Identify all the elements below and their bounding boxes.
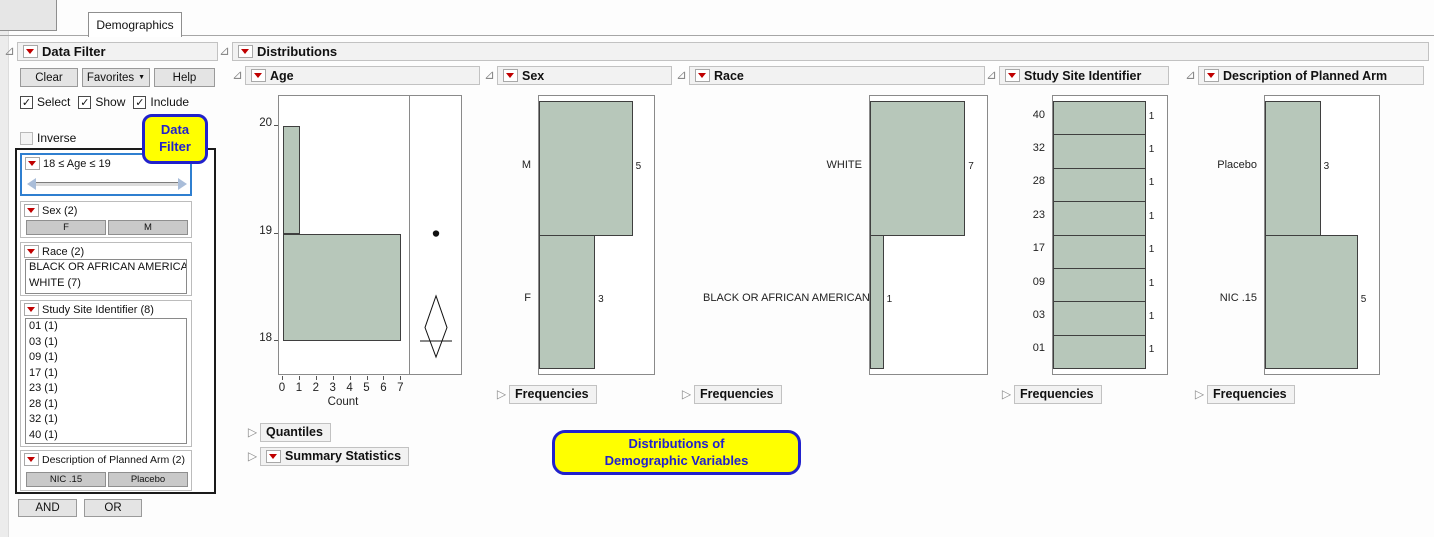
disclosure-open-icon[interactable]: ⊿ <box>1185 66 1196 84</box>
data-filter-callout: Data Filter <box>142 114 208 164</box>
histogram-bar[interactable] <box>1053 268 1146 302</box>
red-triangle-menu-icon[interactable] <box>695 69 710 82</box>
sex-section-header: ⊿ Sex <box>484 66 672 85</box>
x-axis-title: Count <box>278 396 408 408</box>
race-filter-label: Race (2) <box>42 246 84 258</box>
red-triangle-menu-icon[interactable] <box>1005 69 1020 82</box>
help-button[interactable]: Help <box>154 68 215 87</box>
site-filter-box: Study Site Identifier (8) 01 (1)03 (1)09… <box>20 300 192 447</box>
list-item[interactable]: 01 (1) <box>26 319 186 335</box>
list-item[interactable]: BLACK OR AFRICAN AMERICAN (1) <box>26 260 186 276</box>
red-triangle-menu-icon[interactable] <box>1204 69 1219 82</box>
plot-frame <box>869 95 988 375</box>
x-tick-mark <box>316 376 317 380</box>
y-tick-mark <box>274 125 278 126</box>
arm-placebo-button[interactable]: Placebo <box>108 472 188 487</box>
list-item[interactable]: 09 (1) <box>26 350 186 366</box>
arm-frequencies-row: ▷ Frequencies <box>1194 385 1295 404</box>
sex-frequencies-row: ▷ Frequencies <box>496 385 597 404</box>
frequencies-button[interactable]: Frequencies <box>1014 385 1102 404</box>
show-checkbox[interactable] <box>78 96 91 109</box>
category-label: 01 <box>1014 342 1045 354</box>
bar-value-label: 1 <box>1149 111 1155 122</box>
site-bar-chart: 140132128123117109103101 <box>1014 95 1172 375</box>
age-section-header: ⊿ Age <box>232 66 480 85</box>
data-filter-title-bar: Data Filter <box>17 42 218 61</box>
frequencies-button[interactable]: Frequencies <box>694 385 782 404</box>
disclosure-closed-icon[interactable]: ▷ <box>247 447 258 465</box>
x-tick-label: 1 <box>291 382 307 394</box>
filter-mode-checkboxes: Select Show Include <box>20 95 189 109</box>
y-tick-mark <box>274 233 278 234</box>
histogram-bar[interactable] <box>1053 235 1146 269</box>
inverse-row: Inverse <box>20 131 76 145</box>
site-section-header: ⊿ Study Site Identifier <box>986 66 1169 85</box>
clear-button[interactable]: Clear <box>20 68 78 87</box>
category-label: 17 <box>1014 242 1045 254</box>
bar-value-label: 3 <box>1324 161 1330 172</box>
arm-section-header: ⊿ Description of Planned Arm <box>1185 66 1424 85</box>
bar-value-label: 3 <box>598 294 604 305</box>
distributions-header: ⊿ Distributions <box>219 42 1429 61</box>
age-title-bar: Age <box>245 66 480 85</box>
bar-value-label: 5 <box>636 161 642 172</box>
select-label: Select <box>37 95 70 109</box>
inverse-label: Inverse <box>37 131 76 145</box>
summary-statistics-button[interactable]: Summary Statistics <box>260 447 409 466</box>
show-label: Show <box>95 95 125 109</box>
category-label: NIC .15 <box>1206 292 1257 304</box>
sex-f-button[interactable]: F <box>26 220 106 235</box>
category-label: 03 <box>1014 309 1045 321</box>
tab-strip-divider <box>0 35 1434 36</box>
sex-bar-chart: 5M3F <box>500 95 660 375</box>
bar-value-label: 1 <box>1149 344 1155 355</box>
category-label: 09 <box>1014 276 1045 288</box>
sex-m-button[interactable]: M <box>108 220 188 235</box>
y-tick-label: 19 <box>245 225 272 237</box>
left-gutter <box>0 31 9 537</box>
x-tick-label: 2 <box>308 382 324 394</box>
window-corner-decoration <box>0 0 57 31</box>
histogram-bar[interactable] <box>1053 101 1146 135</box>
red-triangle-menu-icon[interactable] <box>25 157 40 170</box>
bar-value-label: 1 <box>1149 144 1155 155</box>
select-checkbox[interactable] <box>20 96 33 109</box>
red-triangle-menu-icon[interactable] <box>24 245 39 258</box>
red-triangle-menu-icon[interactable] <box>24 204 39 217</box>
disclosure-open-icon[interactable]: ⊿ <box>232 66 243 84</box>
list-item[interactable]: 28 (1) <box>26 397 186 413</box>
red-triangle-menu-icon[interactable] <box>23 45 38 58</box>
bar-value-label: 7 <box>968 161 974 172</box>
arm-title-bar: Description of Planned Arm <box>1198 66 1424 85</box>
category-label: 28 <box>1014 175 1045 187</box>
bar-value-label: 1 <box>1149 177 1155 188</box>
arm-filter-box: Description of Planned Arm (2) NIC .15 P… <box>20 450 192 491</box>
histogram-bar[interactable] <box>870 101 965 236</box>
data-filter-header: ⊿ Data Filter <box>4 42 218 61</box>
category-label: M <box>500 159 531 171</box>
disclosure-open-icon[interactable]: ⊿ <box>219 42 230 60</box>
arm-filter-label: Description of Planned Arm (2) <box>42 454 185 466</box>
disclosure-open-icon[interactable]: ⊿ <box>4 42 15 60</box>
red-triangle-menu-icon[interactable] <box>24 303 39 316</box>
race-filter-box: Race (2) BLACK OR AFRICAN AMERICAN (1)WH… <box>20 242 192 296</box>
jmp-report-window: Demographics ⊿ Data Filter Clear Favorit… <box>0 0 1434 537</box>
category-label: BLACK OR AFRICAN AMERICAN <box>703 292 862 304</box>
disclosure-closed-icon[interactable]: ▷ <box>1194 385 1205 403</box>
histogram-bar[interactable] <box>1265 101 1321 236</box>
race-title: Race <box>714 69 744 83</box>
y-tick-mark <box>274 340 278 341</box>
category-label: Placebo <box>1206 159 1257 171</box>
histogram-bar[interactable] <box>283 126 300 233</box>
category-label: 40 <box>1014 109 1045 121</box>
summary-statistics-row: ▷ Summary Statistics <box>247 447 409 466</box>
quantiles-button[interactable]: Quantiles <box>260 423 331 442</box>
x-tick-label: 7 <box>392 382 408 394</box>
category-label: WHITE <box>703 159 862 171</box>
tab-demographics[interactable]: Demographics <box>88 12 182 37</box>
disclosure-closed-icon[interactable]: ▷ <box>681 385 692 403</box>
x-tick-label: 4 <box>342 382 358 394</box>
plot-frame <box>1052 95 1168 375</box>
data-filter-title: Data Filter <box>42 44 106 59</box>
arm-nic-button[interactable]: NIC .15 <box>26 472 106 487</box>
sex-filter-box: Sex (2) F M <box>20 201 192 238</box>
histogram-bar[interactable] <box>1265 235 1358 370</box>
histogram-bar[interactable] <box>1053 134 1146 168</box>
dropdown-caret-icon: ▼ <box>138 74 145 81</box>
sex-title-bar: Sex <box>497 66 672 85</box>
x-tick-mark <box>282 376 283 380</box>
y-tick-label: 18 <box>245 332 272 344</box>
red-triangle-menu-icon[interactable] <box>238 45 253 58</box>
filter-group-box: 18 ≤ Age ≤ 19 Sex (2) F M Race (2) BLACK… <box>15 148 216 494</box>
plot-frame <box>1264 95 1380 375</box>
list-item[interactable]: 32 (1) <box>26 412 186 428</box>
x-tick-mark <box>350 376 351 380</box>
x-tick-mark <box>400 376 401 380</box>
site-filter-label: Study Site Identifier (8) <box>42 304 154 316</box>
x-tick-mark <box>299 376 300 380</box>
x-tick-mark <box>367 376 368 380</box>
histogram-bar[interactable] <box>283 234 401 341</box>
bar-value-label: 1 <box>887 294 893 305</box>
bar-value-label: 1 <box>1149 244 1155 255</box>
x-tick-mark <box>333 376 334 380</box>
list-item[interactable]: WHITE (7) <box>26 276 186 292</box>
sex-filter-label: Sex (2) <box>42 205 77 217</box>
disclosure-open-icon[interactable]: ⊿ <box>986 66 997 84</box>
plot-frame <box>278 95 462 375</box>
race-bar-chart: 7WHITE1BLACK OR AFRICAN AMERICAN <box>703 95 993 375</box>
distributions-title-bar: Distributions <box>232 42 1429 61</box>
histogram-bar[interactable] <box>870 235 884 370</box>
red-triangle-menu-icon[interactable] <box>251 69 266 82</box>
histogram-bar[interactable] <box>539 235 595 370</box>
disclosure-open-icon[interactable]: ⊿ <box>676 66 687 84</box>
include-label: Include <box>150 95 189 109</box>
include-checkbox[interactable] <box>133 96 146 109</box>
histogram-bar[interactable] <box>1053 301 1146 335</box>
histogram-bar[interactable] <box>1053 168 1146 202</box>
race-frequencies-row: ▷ Frequencies <box>681 385 782 404</box>
race-section-header: ⊿ Race <box>676 66 985 85</box>
age-histogram-chart: Count 18192001234567 <box>245 95 462 410</box>
disclosure-closed-icon[interactable]: ▷ <box>247 423 258 441</box>
x-tick-label: 5 <box>359 382 375 394</box>
disclosure-closed-icon[interactable]: ▷ <box>1001 385 1012 403</box>
list-item[interactable]: 03 (1) <box>26 335 186 351</box>
category-label: 23 <box>1014 209 1045 221</box>
histogram-bar[interactable] <box>1053 335 1146 369</box>
histogram-bar[interactable] <box>539 101 633 236</box>
race-title-bar: Race <box>689 66 985 85</box>
favorites-button[interactable]: Favorites▼ <box>82 68 150 87</box>
category-label: 32 <box>1014 142 1045 154</box>
age-filter-label: 18 ≤ Age ≤ 19 <box>43 158 111 170</box>
red-triangle-menu-icon[interactable] <box>266 450 281 463</box>
disclosure-closed-icon[interactable]: ▷ <box>496 385 507 403</box>
bar-value-label: 1 <box>1149 311 1155 322</box>
and-button[interactable]: AND <box>18 499 77 517</box>
plot-frame <box>538 95 655 375</box>
site-title: Study Site Identifier <box>1024 69 1141 83</box>
red-triangle-menu-icon[interactable] <box>24 453 39 466</box>
distributions-title: Distributions <box>257 44 337 59</box>
distributions-callout: Distributions of Demographic Variables <box>552 430 801 475</box>
bar-value-label: 1 <box>1149 211 1155 222</box>
list-item[interactable]: 17 (1) <box>26 366 186 382</box>
or-button[interactable]: OR <box>84 499 142 517</box>
y-tick-label: 20 <box>245 117 272 129</box>
frequencies-button[interactable]: Frequencies <box>1207 385 1295 404</box>
race-list: BLACK OR AFRICAN AMERICAN (1)WHITE (7) <box>25 259 187 294</box>
site-list: 01 (1)03 (1)09 (1)17 (1)23 (1)28 (1)32 (… <box>25 318 187 444</box>
inverse-checkbox[interactable] <box>20 132 33 145</box>
red-triangle-menu-icon[interactable] <box>503 69 518 82</box>
age-range-slider[interactable] <box>27 177 187 191</box>
category-label: F <box>500 292 531 304</box>
bar-value-label: 1 <box>1149 278 1155 289</box>
disclosure-open-icon[interactable]: ⊿ <box>484 66 495 84</box>
x-tick-label: 3 <box>325 382 341 394</box>
slider-track[interactable] <box>36 182 178 187</box>
arm-bar-chart: 3Placebo5NIC .15 <box>1206 95 1384 375</box>
x-tick-label: 6 <box>375 382 391 394</box>
site-title-bar: Study Site Identifier <box>999 66 1169 85</box>
slider-handle-max[interactable] <box>178 178 187 190</box>
slider-handle-min[interactable] <box>27 178 36 190</box>
list-item[interactable]: 23 (1) <box>26 381 186 397</box>
x-tick-mark <box>383 376 384 380</box>
sex-title: Sex <box>522 69 544 83</box>
outlier-boxplot <box>409 96 463 376</box>
tab-label: Demographics <box>96 18 173 32</box>
site-frequencies-row: ▷ Frequencies <box>1001 385 1102 404</box>
histogram-bar[interactable] <box>1053 201 1146 235</box>
age-title: Age <box>270 69 294 83</box>
bar-value-label: 5 <box>1361 294 1367 305</box>
x-tick-label: 0 <box>274 382 290 394</box>
frequencies-button[interactable]: Frequencies <box>509 385 597 404</box>
quantiles-row: ▷ Quantiles <box>247 423 331 442</box>
list-item[interactable]: 40 (1) <box>26 428 186 444</box>
arm-title: Description of Planned Arm <box>1223 69 1387 83</box>
